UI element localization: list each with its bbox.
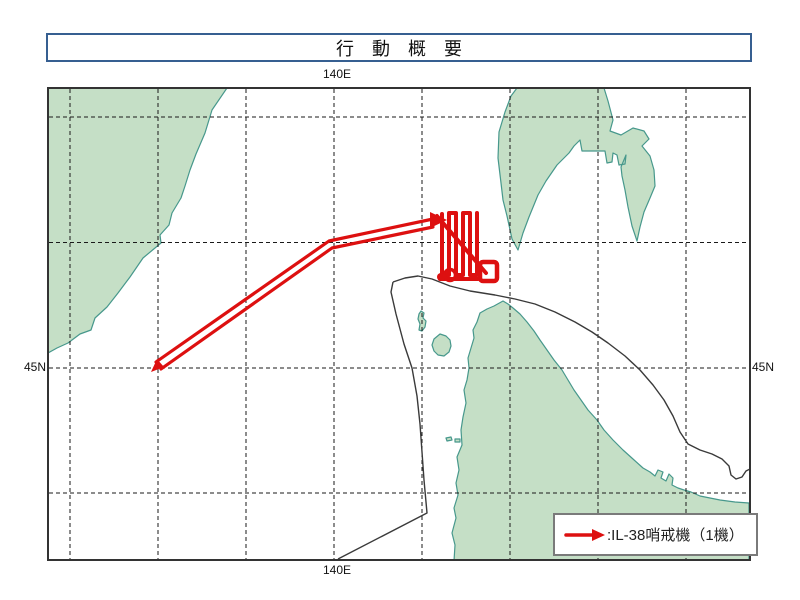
legend-label: :IL-38哨戒機（1機）	[607, 524, 744, 545]
action-summary-page: 行 動 概 要 140E 140E 45N 45N	[0, 0, 800, 600]
legend-box: :IL-38哨戒機（1機）	[553, 513, 758, 556]
islet-small-2	[455, 439, 460, 442]
islet-small-1	[446, 437, 452, 441]
map-canvas	[0, 0, 800, 600]
track-turn-blob	[437, 273, 445, 281]
red-arrow-icon	[564, 527, 606, 543]
